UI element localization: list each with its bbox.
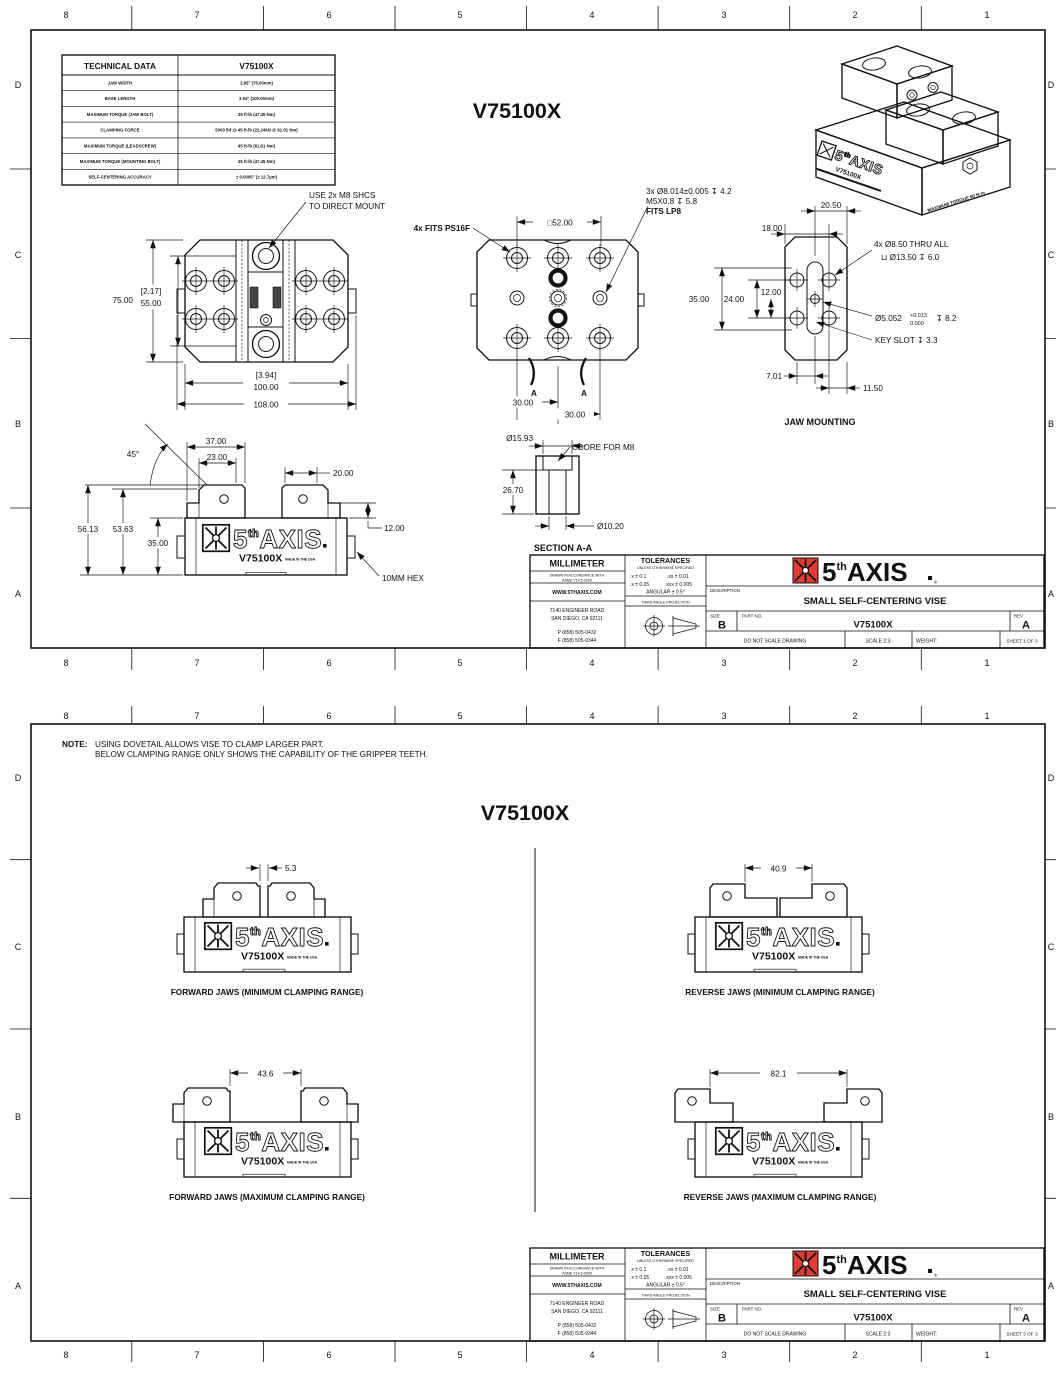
clamp-dim: 43.6 — [258, 1070, 274, 1079]
zone-col: 7 — [194, 10, 199, 20]
svg-text:55.00: 55.00 — [141, 299, 162, 308]
table-row-label: BASE LENGTH — [105, 96, 136, 101]
svg-text:24.00: 24.00 — [724, 295, 745, 304]
zone-row: C — [15, 250, 22, 260]
zone-col: 1 — [984, 658, 989, 668]
callout-ps16f: 4x FITS PS16F — [414, 224, 510, 252]
svg-text:53.63: 53.63 — [113, 525, 134, 534]
svg-text:®: ® — [934, 580, 938, 585]
view-forward-min: 5.3 FORWARD JAWS (MINIMUM CLAMPING RANGE… — [171, 864, 364, 997]
zone-col: 7 — [194, 711, 199, 721]
zone-col: 2 — [852, 1350, 857, 1360]
dim-75: 75.00 [2.17] 55.00 — [113, 240, 184, 362]
mount-holes — [503, 244, 614, 352]
svg-text:P (858) 505-0432: P (858) 505-0432 — [558, 1323, 597, 1329]
callout-5052: Ø5.052 +0.013 0.000 ↧ 8.2 — [823, 302, 957, 327]
svg-text:DO NOT SCALE DRAWING: DO NOT SCALE DRAWING — [744, 639, 807, 645]
clamp-dim: 5.3 — [285, 864, 297, 873]
iso-leadscrew-hex-icon — [963, 158, 977, 174]
clamp-dim: 82.1 — [771, 1070, 787, 1079]
size-value: B — [718, 620, 726, 632]
svg-text:12.00: 12.00 — [761, 288, 782, 297]
size-value: B — [718, 1313, 726, 1325]
dim-heights: 56.13 53.63 35.00 — [71, 485, 183, 575]
zone-col: 1 — [984, 711, 989, 721]
rev-value: A — [1022, 620, 1030, 632]
svg-text:0.000: 0.000 — [910, 321, 924, 327]
svg-text:[3.94]: [3.94] — [256, 371, 277, 380]
description: SMALL SELF-CENTERING VISE — [804, 596, 947, 607]
callout-hex: 10MM HEX — [357, 552, 424, 583]
svg-text:UNLESS OTHERWISE SPECIFIED: UNLESS OTHERWISE SPECIFIED — [637, 1259, 694, 1263]
table-model: V75100X — [239, 61, 274, 71]
svg-text:.x ± 0.05: .x ± 0.05 — [630, 1275, 649, 1281]
zone-row: C — [1048, 942, 1055, 952]
svg-text:26.70: 26.70 — [503, 486, 524, 495]
dim-18: 18.00 — [762, 224, 843, 270]
svg-text:ASME Y14.5-2009: ASME Y14.5-2009 — [562, 579, 592, 583]
third-angle-projection-icon — [643, 1308, 700, 1330]
svg-text:ANGULAR ± 0.5°: ANGULAR ± 0.5° — [646, 1283, 685, 1289]
dim-35-24-12: 35.00 24.00 12.00 — [689, 268, 792, 330]
svg-text:3x Ø8.014±0.005 ↧ 4.2: 3x Ø8.014±0.005 ↧ 4.2 — [646, 187, 732, 196]
zone-col: 5 — [457, 711, 462, 721]
svg-text:.xx ± 0.01: .xx ± 0.01 — [667, 574, 689, 580]
svg-text:5thAXIS: 5thAXIS — [822, 557, 908, 587]
svg-text:SAN DIEGO, CA 92111: SAN DIEGO, CA 92111 — [551, 1309, 603, 1315]
svg-text:®: ® — [934, 1273, 938, 1278]
sheet-number: SHEET 1 OF 3 — [1006, 639, 1038, 644]
svg-text:⊔ Ø13.50 ↧ 6.0: ⊔ Ø13.50 ↧ 6.0 — [881, 253, 940, 262]
zone-row: D — [1048, 80, 1055, 90]
zone-col: 1 — [984, 1350, 989, 1360]
svg-text:WEIGHT:: WEIGHT: — [916, 639, 937, 645]
svg-text:WEIGHT:: WEIGHT: — [916, 1332, 937, 1338]
table-row-label: MAXIMUM TORQUE (LEADSCREW) — [84, 143, 157, 148]
title-block-sheet1: MILLIMETER DRAWN IN ACCORDANCE WITH ASME… — [530, 555, 1044, 648]
svg-text:30.00: 30.00 — [565, 411, 586, 420]
section-label: SECTION A-A — [534, 543, 593, 553]
svg-text:35.00: 35.00 — [689, 295, 710, 304]
dim-52: □52.00 — [517, 216, 601, 246]
zone-col: 7 — [194, 1350, 199, 1360]
svg-text:REV: REV — [1014, 614, 1023, 619]
view-caption: REVERSE JAWS (MINIMUM CLAMPING RANGE) — [685, 987, 875, 997]
svg-text:A: A — [581, 389, 587, 398]
sheet1-title: V75100X — [473, 99, 562, 123]
zone-col: 3 — [721, 658, 726, 668]
svg-text:7140 ENGINEER ROAD: 7140 ENGINEER ROAD — [550, 608, 605, 614]
sheet-number: SHEET 3 OF 3 — [1006, 1332, 1038, 1337]
left-jaw — [187, 485, 245, 518]
sheet-1: 8 7 6 5 4 3 2 1 8 7 6 5 4 3 2 1 D C B A … — [10, 6, 1056, 670]
svg-text:DESCRIPTION: DESCRIPTION — [710, 588, 740, 593]
svg-text:ASME Y14.5-2009: ASME Y14.5-2009 — [562, 1272, 592, 1276]
zone-row: A — [15, 589, 21, 599]
dim-1150: 11.50 — [816, 330, 883, 394]
iso-engraved-logo: 5thAXIS V75100X — [813, 141, 890, 191]
svg-text:.x ± 0.1: .x ± 0.1 — [630, 1267, 647, 1273]
zone-col: 3 — [721, 10, 726, 20]
dim-20: 20.00 — [285, 467, 354, 483]
iso-torque-note: MAXIMUM TORQUE 60 N·m — [927, 190, 986, 213]
svg-text:USE 2x M8 SHCS: USE 2x M8 SHCS — [309, 191, 376, 200]
view-reverse-min: 40.9 REVERSE JAWS (MINIMUM CLAMPING RANG… — [685, 863, 875, 998]
svg-text:10MM HEX: 10MM HEX — [382, 574, 424, 583]
zone-col: 8 — [63, 711, 68, 721]
zone-row: C — [1048, 250, 1055, 260]
svg-text:TOLERANCES: TOLERANCES — [641, 556, 691, 565]
zone-col: 8 — [63, 10, 68, 20]
table-row-label: CLAMPING FORCE — [100, 128, 139, 133]
svg-text:□52.00: □52.00 — [547, 219, 573, 228]
zone-col: 4 — [589, 1350, 594, 1360]
table-row-label: SELF-CENTERING ACCURACY — [88, 175, 151, 180]
zone-col: 5 — [457, 10, 462, 20]
zone-row: A — [15, 1281, 21, 1291]
svg-text:Ø10.20: Ø10.20 — [597, 522, 624, 531]
svg-text:4x Ø8.50 THRU ALL: 4x Ø8.50 THRU ALL — [874, 240, 949, 249]
table-title: TECHNICAL DATA — [84, 61, 156, 71]
svg-text:56.13: 56.13 — [78, 525, 99, 534]
table-row-value: 35 ft-lb (47.45 Nm) — [238, 159, 276, 164]
svg-text:SCALE 2:3: SCALE 2:3 — [866, 639, 891, 645]
svg-text:REV: REV — [1014, 1307, 1023, 1312]
jaw-mounting-view: 20.50 18.00 35.00 24.00 12.00 4x Ø8.50 T… — [689, 201, 957, 427]
svg-text:F (858) 505-9344: F (858) 505-9344 — [558, 638, 597, 644]
section-view: Ø15.93 CBORE FOR M8 26.70 Ø10.20 SECTION… — [495, 434, 635, 553]
dim-12-side: 12.00 — [340, 503, 405, 533]
table-row-value: ± 0.0005" (± 12.7µm) — [236, 175, 278, 180]
zone-col: 2 — [852, 10, 857, 20]
rev-value: A — [1022, 1313, 1030, 1325]
svg-text:12.00: 12.00 — [384, 524, 405, 533]
zone-col: 5 — [457, 658, 462, 668]
svg-text:.xx ± 0.01: .xx ± 0.01 — [667, 1267, 689, 1273]
zone-col: 4 — [589, 658, 594, 668]
drawing-canvas: 5thAXIS V75100X MADE IN THE USA 8 7 6 5 … — [0, 0, 1056, 1386]
svg-text:.xxx ± 0.005: .xxx ± 0.005 — [665, 582, 692, 588]
svg-text:PART NO.: PART NO. — [742, 1307, 762, 1312]
units-label: MILLIMETER — [550, 559, 605, 569]
dim-1020: Ø10.20 — [535, 516, 624, 531]
part-number: V75100X — [853, 1313, 893, 1324]
table-row-value: 45 ft-lb (61.01 Nm) — [238, 143, 276, 148]
jaw-bolt-holes — [182, 267, 348, 333]
zone-col: 4 — [589, 711, 594, 721]
svg-text:45°: 45° — [127, 450, 139, 459]
zone-col: 6 — [326, 711, 331, 721]
dim-2050: 20.50 — [801, 201, 861, 256]
zone-col: 4 — [589, 10, 594, 20]
svg-text:F (858) 505-9344: F (858) 505-9344 — [558, 1331, 597, 1337]
zone-col: 5 — [457, 1350, 462, 1360]
third-angle-projection-icon — [643, 615, 700, 637]
zone-row: D — [15, 773, 22, 783]
svg-text:+0.013: +0.013 — [910, 313, 927, 319]
svg-text:7140 ENGINEER ROAD: 7140 ENGINEER ROAD — [550, 1301, 605, 1307]
svg-text:ANGULAR ± 0.5°: ANGULAR ± 0.5° — [646, 590, 685, 596]
svg-text:5thAXIS: 5thAXIS — [822, 1250, 908, 1280]
svg-text:.x ± 0.1: .x ± 0.1 — [630, 574, 647, 580]
table-row-label: MAXIMUM TORQUE (JAW BOLT) — [87, 112, 154, 117]
svg-text:SAN DIEGO, CA 92111: SAN DIEGO, CA 92111 — [551, 616, 603, 622]
svg-text:TO DIRECT MOUNT: TO DIRECT MOUNT — [309, 202, 385, 211]
svg-text:18.00: 18.00 — [762, 224, 783, 233]
svg-text:[2.17]: [2.17] — [141, 287, 162, 296]
part-number: V75100X — [853, 620, 893, 631]
clamp-dim: 40.9 — [771, 865, 787, 874]
svg-text:Ø15.93: Ø15.93 — [506, 434, 533, 443]
zone-col: 6 — [326, 10, 331, 20]
svg-text:.x ± 0.05: .x ± 0.05 — [630, 582, 649, 588]
dim-45deg: 45° — [85, 424, 207, 489]
view-caption: REVERSE JAWS (MAXIMUM CLAMPING RANGE) — [684, 1192, 877, 1202]
sheet-3: 8 7 6 5 4 3 2 1 8 7 6 5 4 3 2 1 D C B A … — [10, 706, 1056, 1362]
svg-text:KEY SLOT ↧ 3.3: KEY SLOT ↧ 3.3 — [875, 336, 938, 345]
zone-col: 8 — [63, 658, 68, 668]
table-row-label: JAW WIDTH — [108, 81, 133, 86]
svg-text:100.00: 100.00 — [253, 383, 278, 392]
svg-text:23.00: 23.00 — [207, 453, 228, 462]
title-block-sheet3: MILLIMETER DRAWN IN ACCORDANCE WITH ASME… — [530, 1248, 1044, 1341]
svg-text:4x FITS PS16F: 4x FITS PS16F — [414, 224, 470, 233]
zone-row: D — [1048, 773, 1055, 783]
callout-850: 4x Ø8.50 THRU ALL ⊔ Ø13.50 ↧ 6.0 — [835, 240, 949, 275]
brand-logo: 5thAXIS ® — [793, 1250, 938, 1280]
svg-text:DRAWN IN ACCORDANCE WITH: DRAWN IN ACCORDANCE WITH — [550, 574, 605, 578]
description: SMALL SELF-CENTERING VISE — [804, 1289, 947, 1300]
svg-text:CBORE FOR M8: CBORE FOR M8 — [572, 443, 635, 452]
svg-text:20.50: 20.50 — [821, 201, 842, 210]
svg-text:Ø5.052: Ø5.052 — [875, 314, 902, 323]
svg-text:P (858) 505-0432: P (858) 505-0432 — [558, 630, 597, 636]
table-row-value: 5000 lbf @ 45 ft-lb (22.24kN @ 61.01 Nm) — [215, 128, 298, 133]
zone-col: 7 — [194, 658, 199, 668]
side-view: 45° 37.00 23.00 20.00 12.00 — [71, 424, 424, 583]
svg-text:WWW.5THAXIS.COM: WWW.5THAXIS.COM — [552, 1283, 601, 1289]
svg-text:DESCRIPTION: DESCRIPTION — [710, 1281, 740, 1286]
svg-text:SIZE: SIZE — [710, 1307, 720, 1312]
note-block: NOTE: USING DOVETAIL ALLOWS VISE TO CLAM… — [62, 740, 428, 759]
table-row-value: 2.95" (75.00mm) — [240, 81, 273, 86]
svg-text:USING DOVETAIL ALLOWS VISE TO: USING DOVETAIL ALLOWS VISE TO CLAMP LARG… — [95, 740, 324, 749]
table-row-value: 35 ft-lb (47.45 Nm) — [238, 112, 276, 117]
svg-text:UNLESS OTHERWISE SPECIFIED: UNLESS OTHERWISE SPECIFIED — [637, 566, 694, 570]
zone-col: 2 — [852, 711, 857, 721]
zone-row: A — [1048, 589, 1054, 599]
center-screw-holes — [248, 243, 283, 358]
svg-text:TOLERANCES: TOLERANCES — [641, 1249, 691, 1258]
view-forward-max: 43.6 FORWARD JAWS (MAXIMUM CLAMPING RANG… — [169, 1068, 365, 1203]
dim-30-right: 30.00 — [557, 409, 600, 420]
svg-text:M5X0.8 ↧ 5.8: M5X0.8 ↧ 5.8 — [646, 197, 697, 206]
dim-55 — [170, 256, 236, 346]
zone-row: B — [1048, 419, 1054, 429]
svg-text:PART NO.: PART NO. — [742, 614, 762, 619]
zone-row: B — [15, 419, 21, 429]
svg-text:75.00: 75.00 — [113, 296, 134, 305]
zone-col: 8 — [63, 1350, 68, 1360]
svg-text:WWW.5THAXIS.COM: WWW.5THAXIS.COM — [552, 590, 601, 596]
zone-col: 6 — [326, 658, 331, 668]
table-row-value: 3.94" (100.00mm) — [239, 96, 275, 101]
svg-text:FITS LP8: FITS LP8 — [646, 207, 681, 216]
zone-row: B — [15, 1112, 21, 1122]
zone-col: 3 — [721, 711, 726, 721]
table-row-label: MAXIMUM TORQUE (MOUNTING BOLT) — [80, 159, 161, 164]
view-reverse-max: 82.1 REVERSE JAWS (MAXIMUM CLAMPING RANG… — [675, 1068, 882, 1203]
zone-row: A — [1048, 1281, 1054, 1291]
svg-text:SCALE 2:3: SCALE 2:3 — [866, 1332, 891, 1338]
view-caption: FORWARD JAWS (MINIMUM CLAMPING RANGE) — [171, 987, 364, 997]
technical-data-table: TECHNICAL DATA V75100X JAW WIDTH 2.95" (… — [62, 55, 335, 185]
zone-col: 1 — [984, 10, 989, 20]
svg-text:SIZE: SIZE — [710, 614, 720, 619]
zone-row: B — [1048, 1112, 1054, 1122]
svg-text:35.00: 35.00 — [148, 539, 169, 548]
zone-col: 3 — [721, 1350, 726, 1360]
zone-col: 2 — [852, 658, 857, 668]
svg-text:DRAWN IN ACCORDANCE WITH: DRAWN IN ACCORDANCE WITH — [550, 1267, 605, 1271]
svg-text:NOTE:: NOTE: — [62, 740, 87, 749]
svg-text:108.00: 108.00 — [253, 401, 278, 410]
svg-text:30.00: 30.00 — [513, 399, 534, 408]
svg-text:37.00: 37.00 — [206, 437, 227, 446]
svg-text:THIRD ANGLE PROJECTION: THIRD ANGLE PROJECTION — [641, 1294, 690, 1298]
jaw-mounting-label: JAW MOUNTING — [785, 417, 856, 427]
zone-col: 6 — [326, 1350, 331, 1360]
sheet3-title: V75100X — [481, 801, 570, 825]
zone-row: C — [15, 942, 22, 952]
svg-text:.xxx ± 0.005: .xxx ± 0.005 — [665, 1275, 692, 1281]
svg-text:11.50: 11.50 — [863, 384, 883, 393]
units-label: MILLIMETER — [550, 1252, 605, 1262]
view-caption: FORWARD JAWS (MAXIMUM CLAMPING RANGE) — [169, 1192, 365, 1202]
svg-text:BELOW CLAMPING RANGE ONLY SHOW: BELOW CLAMPING RANGE ONLY SHOWS THE CAPA… — [95, 750, 428, 759]
svg-text:DO NOT SCALE DRAWING: DO NOT SCALE DRAWING — [744, 1332, 807, 1338]
top-view: 75.00 [2.17] 55.00 [3.94] 100.00 108.00 … — [113, 191, 386, 410]
svg-text:7.01: 7.01 — [766, 372, 782, 381]
brand-logo: 5thAXIS ® — [793, 557, 938, 587]
plan-view: □52.00 4x FITS PS16F 3x Ø8.014±0.005 ↧ 4… — [414, 187, 732, 424]
svg-text:20.00: 20.00 — [333, 469, 354, 478]
svg-text:THIRD ANGLE PROJECTION: THIRD ANGLE PROJECTION — [641, 601, 690, 605]
zone-row: D — [15, 80, 22, 90]
svg-text:↧ 8.2: ↧ 8.2 — [936, 314, 957, 323]
isometric-view: 5thAXIS V75100X MAXIMUM TORQUE 60 N·m — [813, 46, 1010, 215]
right-jaw — [282, 485, 340, 518]
